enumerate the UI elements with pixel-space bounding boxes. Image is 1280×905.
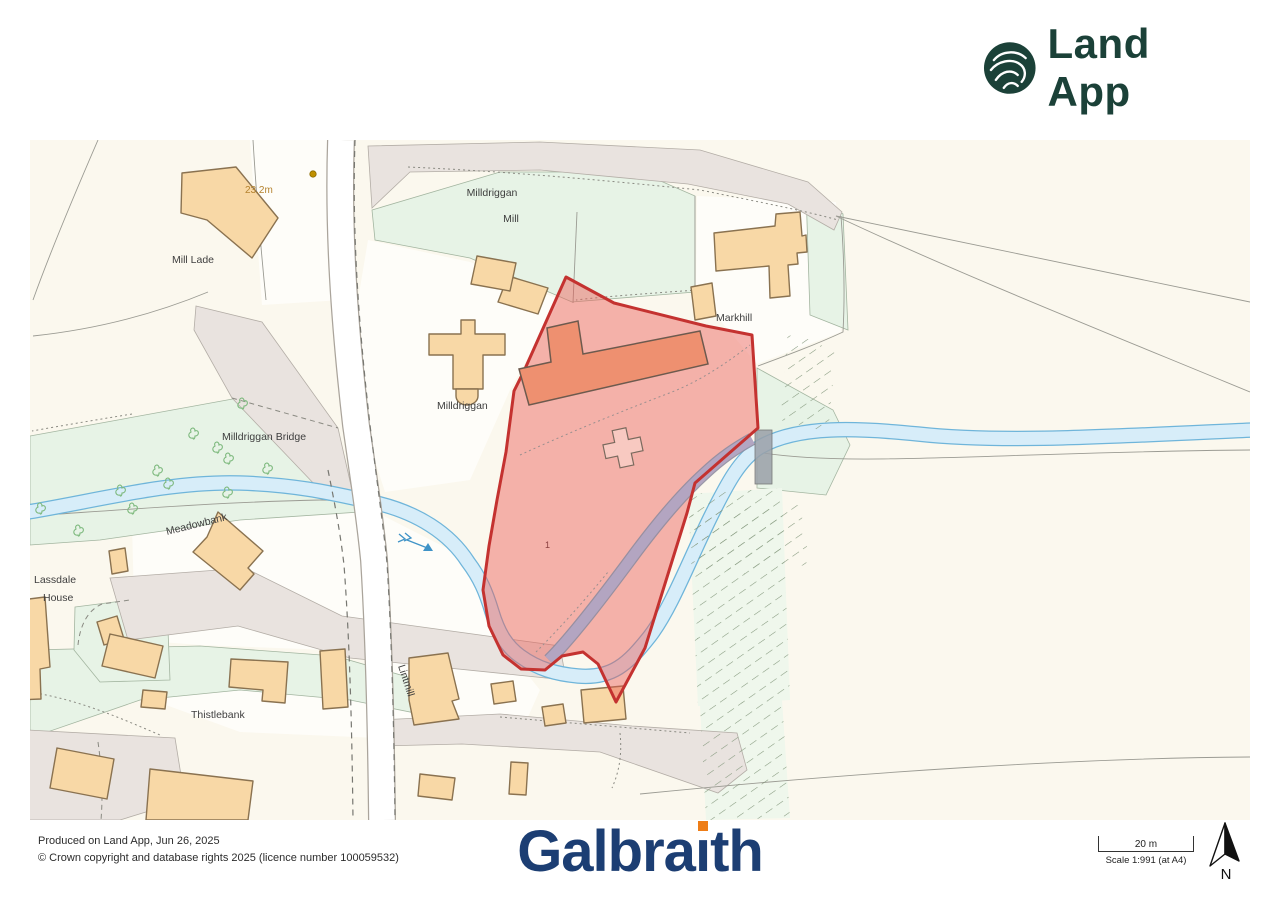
parcel-id-label: 1: [545, 540, 550, 550]
markhill-label: Markhill: [716, 312, 752, 324]
landapp-logo-text: Land App: [1048, 20, 1242, 116]
thistlebank-label: Thistlebank: [191, 709, 245, 721]
landapp-logo: Land App: [982, 38, 1242, 98]
map-canvas: 23.2m Mill Lade Milldriggan Mill Markhil…: [0, 0, 1280, 905]
lassdale-label-1: Lassdale: [34, 574, 76, 586]
spot-height-dot: [310, 171, 316, 177]
scale-bar-bracket: 20 m: [1098, 836, 1194, 852]
landapp-logo-icon: [982, 40, 1038, 96]
scale-bar: 20 m Scale 1:991 (at A4): [1098, 836, 1194, 866]
galbraith-i: ı: [695, 818, 710, 885]
milldriggan-bridge-label: Milldriggan Bridge: [222, 431, 306, 443]
north-label: N: [1221, 866, 1232, 883]
mill-lade-label: Mill Lade: [172, 254, 214, 266]
milldriggan-mill-label-1: Milldriggan: [467, 187, 518, 199]
scale-distance: 20 m: [1135, 839, 1157, 851]
milldriggan-label: Milldriggan: [437, 400, 488, 412]
milldriggan-mill-label-2: Mill: [503, 213, 519, 225]
galbraith-logo: Galbraıth: [0, 818, 1280, 885]
galbraith-suffix: th: [710, 819, 763, 884]
galbraith-prefix: Galbra: [517, 819, 695, 884]
map-layers: 23.2m Mill Lade Milldriggan Mill Markhil…: [13, 140, 1252, 820]
north-arrow: N: [1206, 820, 1246, 884]
weir: [755, 430, 772, 484]
scale-text: Scale 1:991 (at A4): [1098, 855, 1194, 866]
lassdale-label-2: House: [43, 592, 74, 604]
spot-height-label: 23.2m: [245, 185, 273, 196]
